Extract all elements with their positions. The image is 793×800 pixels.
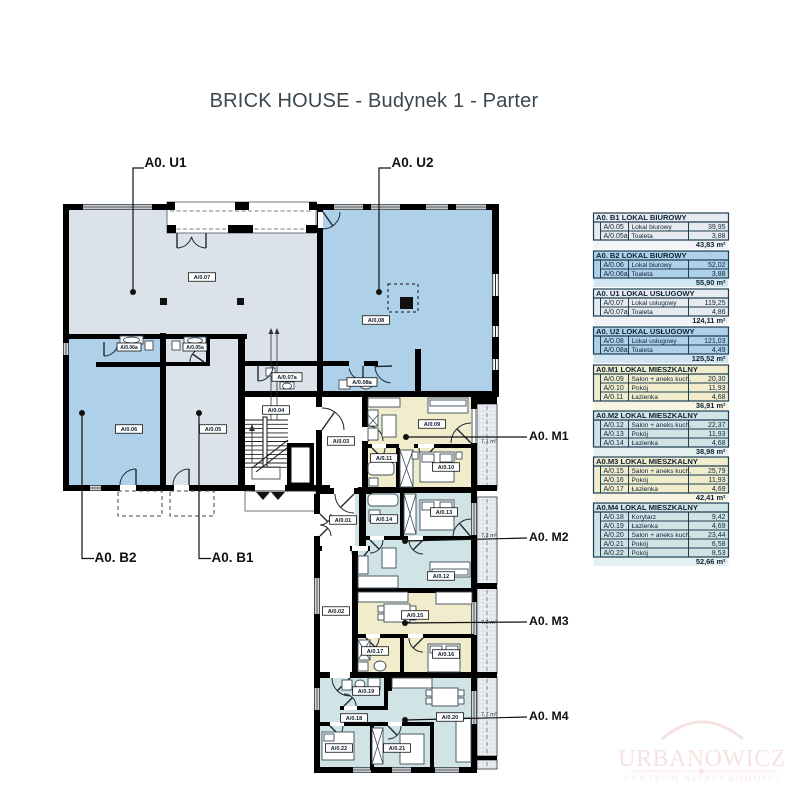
- svg-text:A/0.10: A/0.10: [604, 385, 624, 392]
- svg-text:121,03: 121,03: [704, 338, 726, 345]
- svg-text:Korytarz: Korytarz: [632, 514, 657, 521]
- svg-text:23,44: 23,44: [708, 532, 726, 539]
- svg-text:A/0.08: A/0.08: [604, 338, 624, 345]
- svg-text:22,37: 22,37: [708, 422, 726, 429]
- svg-text:36,91 m²: 36,91 m²: [696, 401, 726, 410]
- svg-text:A0. U1 LOKAL USŁUGOWY: A0. U1 LOKAL USŁUGOWY: [596, 289, 695, 298]
- svg-text:A/0.12: A/0.12: [604, 422, 624, 429]
- svg-text:A/0.06: A/0.06: [121, 427, 137, 433]
- svg-text:Toaleta: Toaleta: [632, 233, 654, 240]
- svg-text:A0.M3 LOKAL MIESZKALNY: A0.M3 LOKAL MIESZKALNY: [596, 457, 698, 466]
- svg-text:Salon + aneks kuch.: Salon + aneks kuch.: [632, 532, 692, 539]
- svg-text:A0.M1 LOKAL MIESZKALNY: A0.M1 LOKAL MIESZKALNY: [596, 365, 698, 374]
- svg-text:A/0.04: A/0.04: [268, 408, 285, 414]
- svg-text:A0.M2 LOKAL MIESZKALNY: A0.M2 LOKAL MIESZKALNY: [596, 411, 698, 420]
- svg-text:Lokal biurowy: Lokal biurowy: [632, 224, 673, 231]
- svg-text:A0. M2: A0. M2: [529, 530, 569, 544]
- svg-text:A0. B2: A0. B2: [95, 550, 137, 565]
- svg-text:A/0.06: A/0.06: [604, 262, 624, 269]
- svg-text:6,58: 6,58: [712, 541, 726, 548]
- svg-text:Salon + aneks kuch.: Salon + aneks kuch.: [632, 376, 692, 383]
- svg-text:A/0.07a: A/0.07a: [277, 375, 297, 381]
- svg-text:42,41 m²: 42,41 m²: [696, 493, 726, 502]
- svg-text:A0. M1: A0. M1: [529, 429, 569, 443]
- svg-text:Lokal usługowy: Lokal usługowy: [632, 300, 678, 307]
- svg-text:38,98 m²: 38,98 m²: [696, 447, 726, 456]
- svg-text:A0. B2 LOKAL BIUROWY: A0. B2 LOKAL BIUROWY: [596, 251, 687, 260]
- svg-text:4,68: 4,68: [712, 440, 726, 447]
- svg-text:Łazienka: Łazienka: [632, 394, 659, 401]
- svg-text:A0. B1: A0. B1: [212, 550, 255, 565]
- svg-text:Pokój: Pokój: [632, 550, 649, 557]
- svg-text:A/0.18: A/0.18: [604, 514, 624, 521]
- svg-text:A/0.11: A/0.11: [604, 394, 624, 401]
- svg-text:A/0.22: A/0.22: [604, 550, 624, 557]
- svg-text:A/0.13: A/0.13: [436, 510, 452, 516]
- svg-text:A/0.07a: A/0.07a: [604, 309, 628, 316]
- svg-text:Pokój: Pokój: [632, 385, 649, 392]
- svg-text:A/0.05a: A/0.05a: [186, 345, 204, 351]
- svg-text:124,11 m²: 124,11 m²: [692, 316, 726, 325]
- svg-text:11,93: 11,93: [709, 385, 726, 392]
- svg-text:8,53: 8,53: [712, 550, 726, 557]
- svg-text:Toaleta: Toaleta: [632, 271, 654, 278]
- svg-text:3,88: 3,88: [712, 233, 726, 240]
- svg-text:11,93: 11,93: [709, 431, 726, 438]
- svg-text:4,69: 4,69: [712, 523, 726, 530]
- svg-text:Salon + aneks kuch.: Salon + aneks kuch.: [632, 422, 692, 429]
- svg-text:Łazienka: Łazienka: [632, 486, 659, 493]
- svg-text:A/0.17: A/0.17: [367, 649, 383, 655]
- svg-text:A0. U2 LOKAL USŁUGOWY: A0. U2 LOKAL USŁUGOWY: [596, 327, 695, 336]
- svg-text:A/0.06a: A/0.06a: [120, 345, 138, 351]
- svg-text:BRICK HOUSE - Budynek 1 - Part: BRICK HOUSE - Budynek 1 - Parter: [210, 90, 539, 112]
- svg-text:A/0.07: A/0.07: [194, 275, 210, 281]
- svg-text:A0. B1 LOKAL BIUROWY: A0. B1 LOKAL BIUROWY: [596, 213, 687, 222]
- svg-text:A/0.19: A/0.19: [358, 689, 374, 695]
- svg-text:25,79: 25,79: [708, 468, 726, 475]
- svg-text:Lokal usługowy: Lokal usługowy: [632, 338, 678, 345]
- svg-text:A0. U1: A0. U1: [145, 155, 188, 170]
- svg-text:A/0.05: A/0.05: [604, 224, 624, 231]
- svg-text:55,90 m²: 55,90 m²: [696, 278, 726, 287]
- svg-text:20,30: 20,30: [708, 376, 726, 383]
- svg-text:Pokój: Pokój: [632, 541, 649, 548]
- svg-text:119,25: 119,25: [705, 300, 726, 307]
- svg-text:A/0.16: A/0.16: [438, 652, 454, 658]
- svg-text:Toaleta: Toaleta: [632, 347, 654, 354]
- svg-text:7,2 m²: 7,2 m²: [481, 620, 497, 626]
- svg-text:A/0.08: A/0.08: [368, 318, 384, 324]
- svg-text:A/0.17: A/0.17: [604, 486, 624, 493]
- svg-text:A/0.09: A/0.09: [604, 376, 624, 383]
- svg-text:125,52 m²: 125,52 m²: [692, 354, 726, 363]
- svg-text:Toaleta: Toaleta: [632, 309, 654, 316]
- svg-text:9,42: 9,42: [712, 514, 726, 521]
- svg-text:A0. M4: A0. M4: [529, 709, 569, 723]
- svg-text:52,66 m²: 52,66 m²: [696, 557, 726, 566]
- svg-text:39,95: 39,95: [708, 224, 726, 231]
- svg-text:A/0.02: A/0.02: [328, 609, 344, 615]
- svg-text:A/0.06a: A/0.06a: [604, 271, 628, 278]
- svg-text:A/0.15: A/0.15: [604, 468, 624, 475]
- svg-text:A/0.13: A/0.13: [604, 431, 624, 438]
- svg-text:A/0.08a: A/0.08a: [352, 380, 372, 386]
- svg-text:A/0.21: A/0.21: [389, 746, 405, 752]
- svg-text:A/0.16: A/0.16: [604, 477, 624, 484]
- svg-text:A/0.15: A/0.15: [407, 613, 423, 619]
- svg-text:Pokój: Pokój: [632, 477, 649, 484]
- svg-text:Łazienka: Łazienka: [632, 523, 659, 530]
- svg-text:A/0.10: A/0.10: [438, 465, 454, 471]
- svg-text:A0. U2: A0. U2: [392, 155, 434, 170]
- svg-text:A/0.18: A/0.18: [346, 716, 362, 722]
- svg-text:A/0.03: A/0.03: [333, 439, 349, 445]
- svg-text:4,49: 4,49: [712, 347, 726, 354]
- svg-text:A/0.14: A/0.14: [376, 517, 393, 523]
- svg-text:11,93: 11,93: [709, 477, 726, 484]
- svg-text:A/0.09: A/0.09: [424, 422, 440, 428]
- svg-text:3,88: 3,88: [712, 271, 726, 278]
- svg-text:A/0.01: A/0.01: [335, 518, 351, 524]
- svg-text:A/0.22: A/0.22: [331, 746, 347, 752]
- svg-text:A0. M3: A0. M3: [529, 614, 569, 628]
- svg-text:4,86: 4,86: [712, 309, 726, 316]
- svg-text:Salon + aneks kuch.: Salon + aneks kuch.: [632, 468, 692, 475]
- svg-text:Pokój: Pokój: [632, 431, 649, 438]
- svg-text:A/0.08a: A/0.08a: [604, 347, 628, 354]
- svg-text:7,2 m²: 7,2 m²: [481, 533, 497, 539]
- svg-text:52,02: 52,02: [708, 262, 726, 269]
- svg-text:A/0.11: A/0.11: [376, 456, 392, 462]
- svg-text:4,69: 4,69: [712, 486, 726, 493]
- svg-text:43,83 m²: 43,83 m²: [696, 240, 726, 249]
- svg-text:A/0.20: A/0.20: [442, 715, 458, 721]
- svg-text:A/0.19: A/0.19: [604, 523, 624, 530]
- svg-text:7,7 m²: 7,7 m²: [481, 712, 497, 718]
- svg-text:4,68: 4,68: [712, 394, 726, 401]
- svg-text:A/0.21: A/0.21: [604, 541, 624, 548]
- svg-text:Łazienka: Łazienka: [632, 440, 659, 447]
- svg-text:A/0.05a: A/0.05a: [604, 233, 628, 240]
- svg-text:7,1 m²: 7,1 m²: [481, 439, 497, 445]
- svg-text:A/0.20: A/0.20: [604, 532, 624, 539]
- svg-text:Lokal biurowy: Lokal biurowy: [632, 262, 673, 269]
- svg-text:A/0.05: A/0.05: [205, 427, 221, 433]
- svg-text:CENTRUM NIERUCHOMOŚCI: CENTRUM NIERUCHOMOŚCI: [625, 773, 782, 783]
- svg-text:A/0.07: A/0.07: [604, 300, 624, 307]
- svg-text:A0.M4 LOKAL MIESZKALNY: A0.M4 LOKAL MIESZKALNY: [596, 503, 698, 512]
- svg-text:A/0.12: A/0.12: [433, 574, 449, 580]
- svg-text:A/0.14: A/0.14: [604, 440, 624, 447]
